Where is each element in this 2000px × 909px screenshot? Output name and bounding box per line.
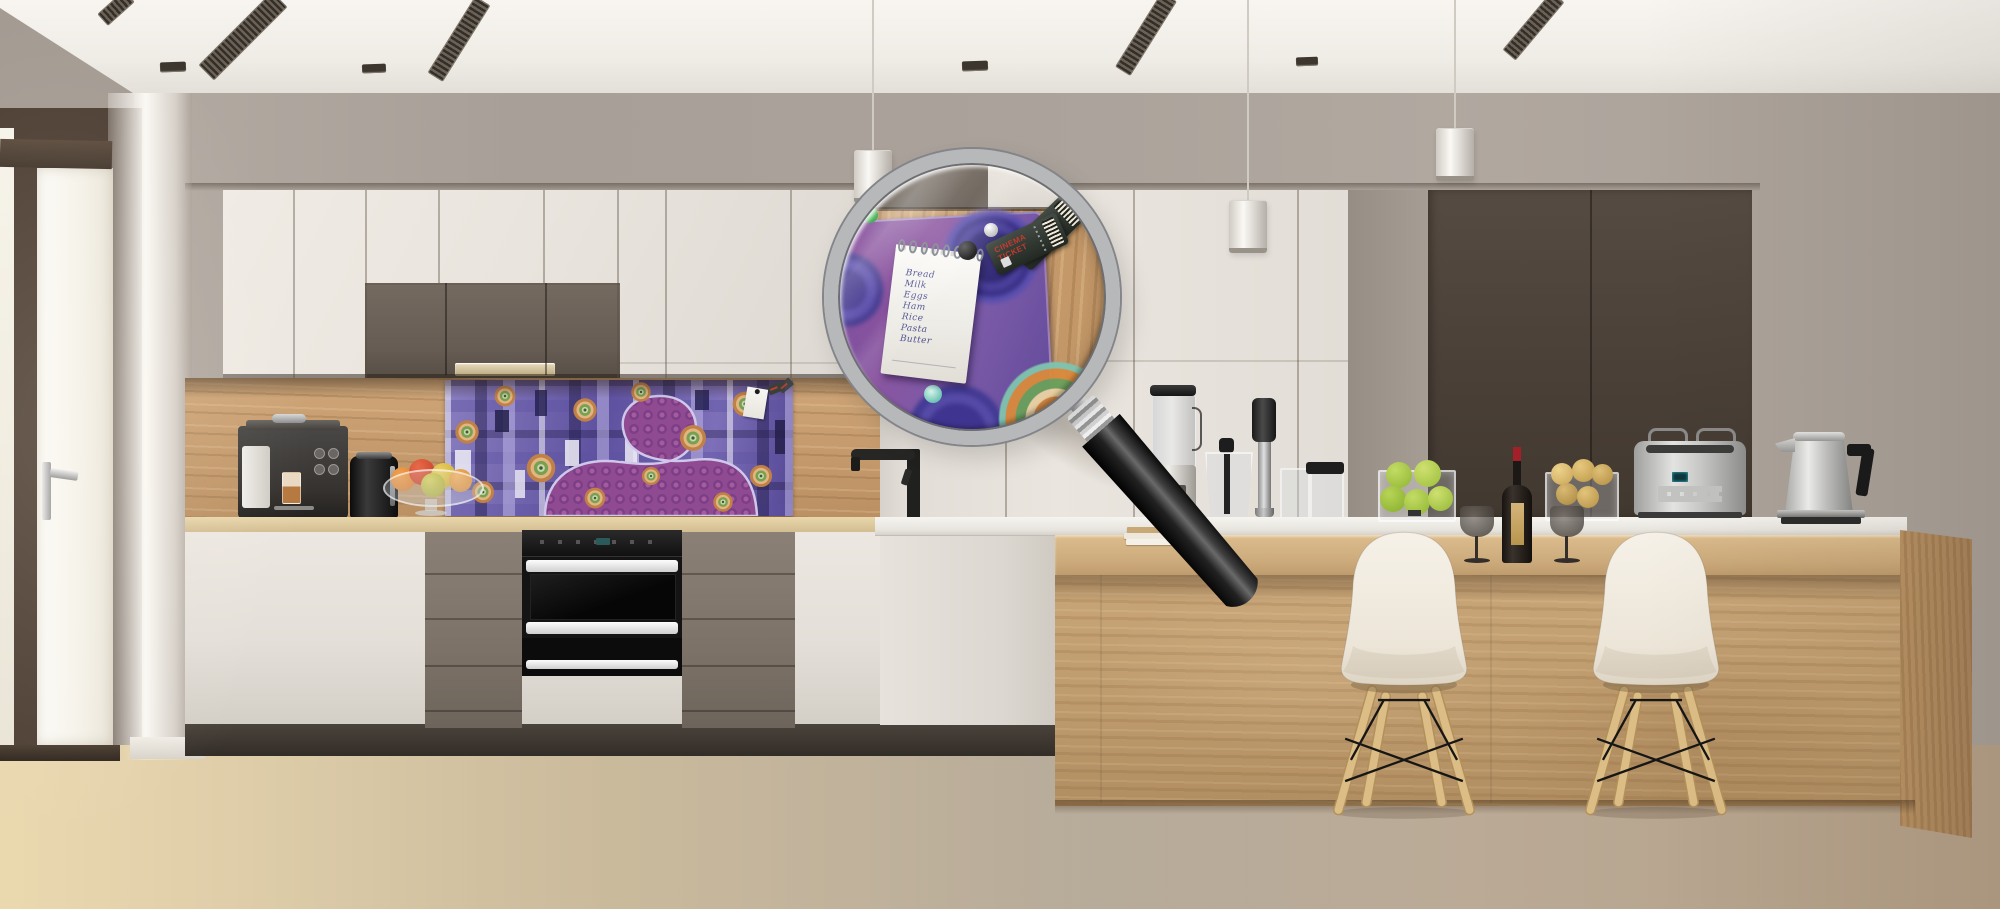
oven-handle [526,622,678,634]
food-processor-cups [1280,462,1342,518]
toaster [1634,428,1746,520]
kettle-lid [1793,432,1845,441]
hand-blender-motor [1252,398,1276,442]
pendant-cord [1247,0,1249,202]
built-in-oven [522,530,682,676]
door-glass-pane [37,168,113,745]
door-top-frame [0,139,112,169]
recessed-spotlight [1296,57,1318,67]
pendant-lamp [1436,128,1474,181]
oven-window [530,574,676,620]
drip-tray [274,506,314,510]
processor-gadget [1306,462,1344,474]
kiwi [1577,486,1599,508]
toaster-buttons [1658,486,1722,502]
toe-kick [185,724,1055,756]
kitchen-scene: CINEMA TICKET CINEMA TICKET Bread Milk E… [0,0,2000,909]
lemon [1556,483,1578,505]
oven-handle [526,560,678,572]
door-sill [0,745,120,761]
milk-carafe [242,446,270,508]
chopper-jug [1205,438,1249,518]
door-glass-pane [0,128,14,748]
hand-blender-shaft [1258,442,1271,510]
bottle-label [1511,503,1524,545]
cabinet-seam [545,283,547,375]
lit-wall-corner [108,93,192,760]
island-end-panel [1900,530,1972,838]
cabinet-seam [790,190,792,378]
pendant-lamp [1229,200,1267,253]
fruit-bowl [383,455,481,519]
blender-lid [1150,385,1196,396]
magnifier-rim [824,149,1120,445]
pendant-cord [872,0,874,152]
cabinet-seam [365,283,620,285]
cabinet-seam [665,190,667,378]
lemon [1592,464,1613,485]
latte-glass [282,472,301,504]
drawer-stack [682,532,795,728]
green-apple [1428,486,1453,511]
green-apple [1386,462,1412,488]
recessed-spotlight [362,64,386,74]
button-panel [314,448,340,484]
bowl-foot [415,510,447,516]
warming-drawer-handle [526,660,678,669]
recessed-spotlight [160,62,186,73]
blender-handle [1192,407,1202,451]
toaster-base [1638,512,1742,518]
green-apple [1414,460,1441,487]
lemon [1551,463,1573,485]
memo-board-art-panel [445,380,793,516]
bar-chair [1574,528,1738,822]
magnet-icon [754,389,760,395]
espresso-machine [238,420,348,518]
toaster-display [1672,472,1688,482]
wine-bottle [1502,447,1532,563]
ceiling [0,0,2000,93]
kettle-spout [1775,438,1795,452]
cabinet-seam [543,190,545,283]
ticket-stripe [780,383,787,390]
green-apple [1380,486,1406,512]
toaster-slots [1646,445,1734,453]
cabinet-seam [438,190,440,283]
base-cabinets [880,535,1055,725]
hand-blender-foot [1255,508,1274,517]
chopper-knob [1219,438,1234,453]
oven-controls [522,530,682,557]
pendant-cord [1454,0,1456,130]
steel-kettle [1775,430,1871,524]
hand-blender [1250,398,1280,518]
cabinet-seam [445,283,447,375]
recessed-spotlight [962,61,988,72]
drawer-stack [425,532,522,728]
bar-chair [1322,528,1486,822]
oven-clock [596,538,610,545]
chrome-lever [272,414,306,423]
kitchen-faucet [845,443,930,521]
vase-label [1408,510,1421,516]
art-pattern [445,380,793,516]
cabinet-seam [293,190,295,378]
